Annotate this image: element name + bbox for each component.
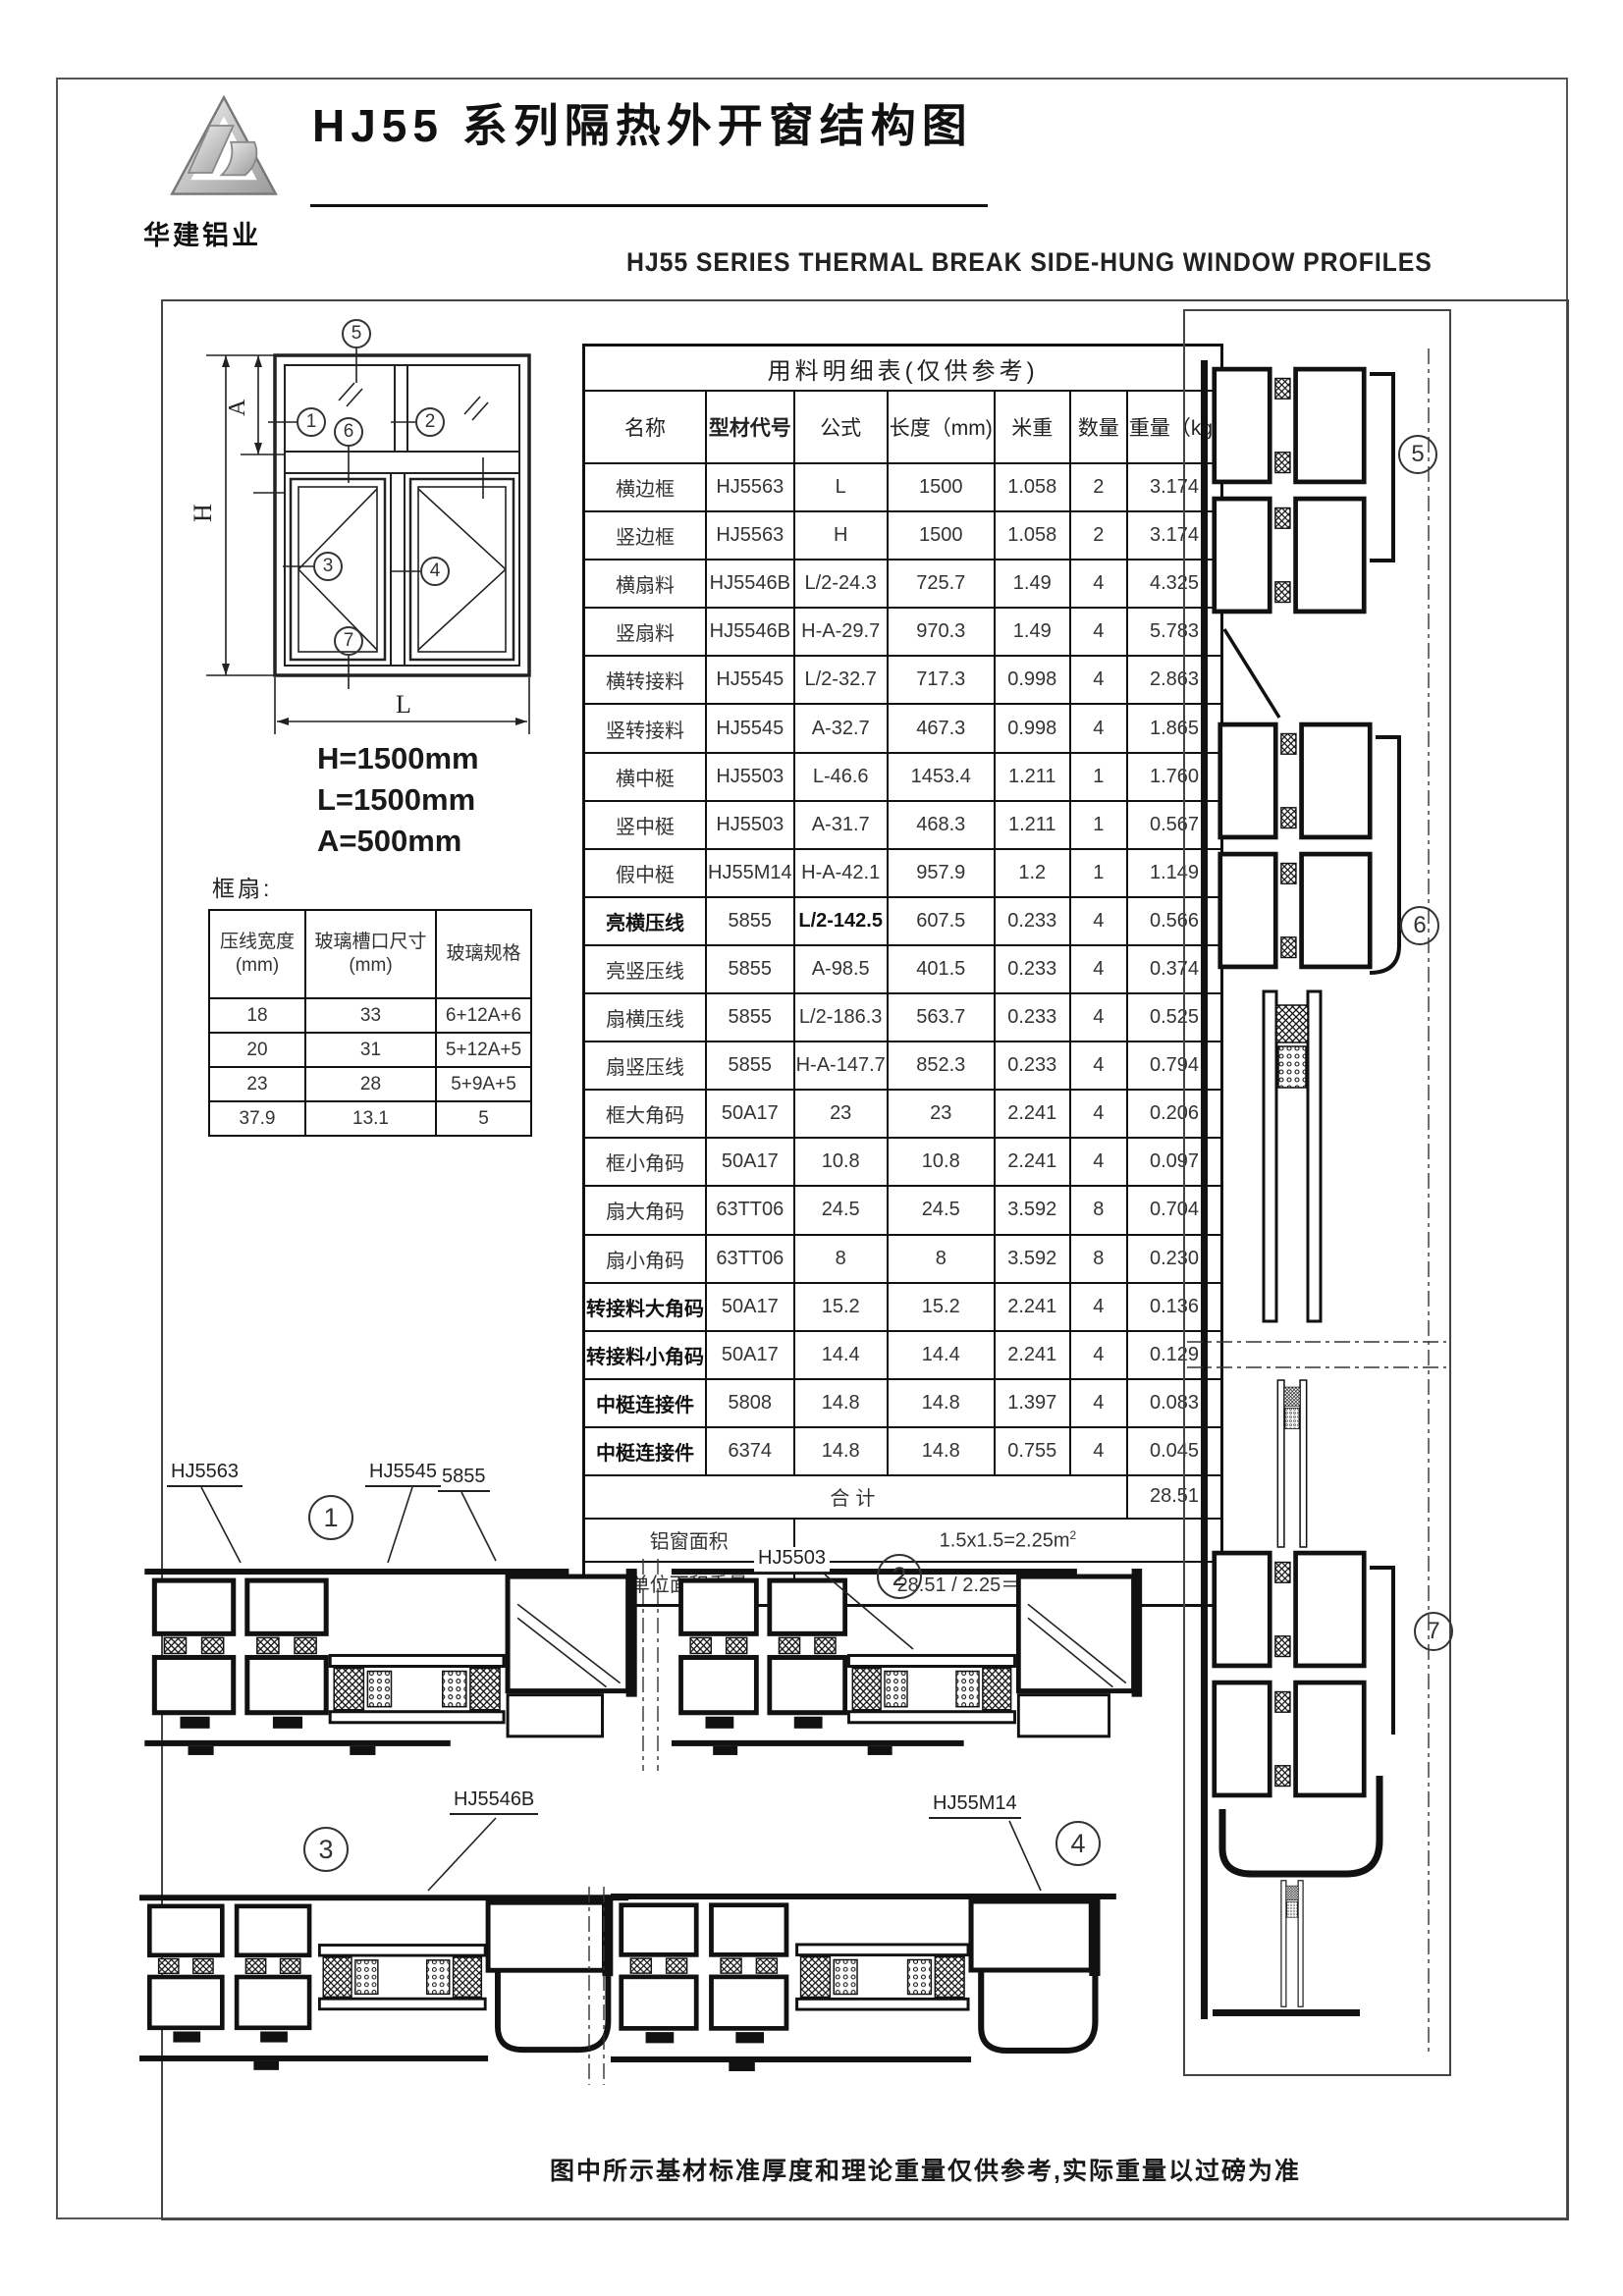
cell-code: 5855 — [706, 897, 794, 945]
marker-7-num: 7 — [344, 630, 354, 652]
material-row-20: 中梃连接件637414.814.80.75540.045 — [584, 1427, 1222, 1475]
detail-marker-4: 4 — [1055, 1821, 1101, 1866]
glass-cell: 13.1 — [305, 1101, 436, 1136]
cell-length: 15.2 — [888, 1283, 995, 1331]
glass-row-2: 23285+9A+5 — [209, 1067, 531, 1101]
material-table-body: 用料明细表(仅供参考) 名称型材代号公式长度（mm)米重数量重量（kg)横边框H… — [584, 346, 1222, 1475]
glass-row-0: 18336+12A+6 — [209, 998, 531, 1033]
cell-length: 8 — [888, 1235, 995, 1283]
frame-sash-heading: 框扇: — [212, 870, 272, 903]
cell-code: 50A17 — [706, 1138, 794, 1186]
cell-qty: 4 — [1070, 1331, 1127, 1379]
cell-code: 6374 — [706, 1427, 794, 1475]
glass-spec-table: 压线宽度 (mm)玻璃槽口尺寸 (mm)玻璃规格18336+12A+620315… — [208, 909, 532, 1137]
cell-name: 假中梃 — [584, 849, 707, 897]
cell-mweight: 0.998 — [995, 656, 1070, 704]
detail-marker-4-num: 4 — [1070, 1829, 1085, 1859]
area-value: 1.5x1.5=2.25m2 — [794, 1519, 1222, 1562]
detail-marker-2: 2 — [877, 1554, 922, 1599]
cell-mweight: 0.233 — [995, 945, 1070, 993]
cell-code: 63TT06 — [706, 1186, 794, 1234]
detail-marker-2-num: 2 — [892, 1562, 906, 1592]
cell-length: 725.7 — [888, 560, 995, 608]
glass-cell: 23 — [209, 1067, 305, 1101]
cell-length: 23 — [888, 1090, 995, 1138]
glass-header-0: 压线宽度 (mm) — [209, 910, 305, 998]
marker-6: 6 — [334, 417, 363, 447]
glass-row-3: 37.913.15 — [209, 1101, 531, 1136]
material-row-16: 扇小角码63TT06883.59280.230 — [584, 1235, 1222, 1283]
cell-mweight: 1.397 — [995, 1379, 1070, 1427]
marker-2-num: 2 — [425, 411, 436, 433]
material-row-1: 竖边框HJ5563H15001.05823.174 — [584, 511, 1222, 560]
cell-length: 467.3 — [888, 704, 995, 752]
cell-name: 横扇料 — [584, 560, 707, 608]
cell-length: 24.5 — [888, 1186, 995, 1234]
section-marker-7: 7 — [1414, 1612, 1453, 1651]
glass-cell: 31 — [305, 1033, 436, 1067]
marker-5: 5 — [342, 319, 371, 348]
cell-qty: 1 — [1070, 801, 1127, 849]
cell-length: 14.4 — [888, 1331, 995, 1379]
cell-length: 970.3 — [888, 608, 995, 656]
cell-length: 468.3 — [888, 801, 995, 849]
cell-name: 扇竖压线 — [584, 1041, 707, 1090]
material-row-2: 横扇料HJ5546BL/2-24.3725.71.4944.325 — [584, 560, 1222, 608]
dim-label-l: L — [396, 690, 411, 719]
cell-code: 50A17 — [706, 1331, 794, 1379]
material-row-14: 框小角码50A1710.810.82.24140.097 — [584, 1138, 1222, 1186]
cell-mweight: 1.211 — [995, 801, 1070, 849]
cell-formula: L/2-32.7 — [794, 656, 888, 704]
cell-length: 1453.4 — [888, 753, 995, 801]
cell-formula: 23 — [794, 1090, 888, 1138]
cell-code: HJ5545 — [706, 656, 794, 704]
cell-code: HJ5563 — [706, 511, 794, 560]
cell-mweight: 2.241 — [995, 1283, 1070, 1331]
cell-formula: H — [794, 511, 888, 560]
material-row-11: 扇横压线5855L/2-186.3563.70.23340.525 — [584, 993, 1222, 1041]
cell-mweight: 0.998 — [995, 704, 1070, 752]
glass-cell: 28 — [305, 1067, 436, 1101]
cell-qty: 4 — [1070, 945, 1127, 993]
cell-qty: 4 — [1070, 993, 1127, 1041]
section-marker-7-num: 7 — [1427, 1618, 1439, 1645]
cell-length: 14.8 — [888, 1427, 995, 1475]
marker-4-num: 4 — [430, 561, 441, 582]
cell-length: 1500 — [888, 463, 995, 511]
cell-name: 中梃连接件 — [584, 1379, 707, 1427]
material-row-13: 框大角码50A1723232.24140.206 — [584, 1090, 1222, 1138]
material-header-3: 长度（mm) — [888, 391, 995, 463]
material-row-19: 中梃连接件580814.814.81.39740.083 — [584, 1379, 1222, 1427]
cell-qty: 8 — [1070, 1235, 1127, 1283]
cell-qty: 4 — [1070, 1427, 1127, 1475]
cell-qty: 2 — [1070, 511, 1127, 560]
cell-formula: L — [794, 463, 888, 511]
cell-formula: L/2-24.3 — [794, 560, 888, 608]
cell-mweight: 1.211 — [995, 753, 1070, 801]
glass-cell: 5+12A+5 — [436, 1033, 531, 1067]
cell-qty: 4 — [1070, 1041, 1127, 1090]
cell-code: 5855 — [706, 945, 794, 993]
glass-table-body: 压线宽度 (mm)玻璃槽口尺寸 (mm)玻璃规格18336+12A+620315… — [209, 910, 531, 1136]
cell-name: 横边框 — [584, 463, 707, 511]
glass-cell: 33 — [305, 998, 436, 1033]
glass-header-row: 压线宽度 (mm)玻璃槽口尺寸 (mm)玻璃规格 — [209, 910, 531, 998]
glass-row-1: 20315+12A+5 — [209, 1033, 531, 1067]
cell-mweight: 0.233 — [995, 993, 1070, 1041]
cell-code: 50A17 — [706, 1090, 794, 1138]
material-row-7: 竖中梃HJ5503A-31.7468.31.21110.567 — [584, 801, 1222, 849]
profile-label-hj5563: HJ5563 — [167, 1461, 243, 1487]
cell-code: 5808 — [706, 1379, 794, 1427]
glass-header-2: 玻璃规格 — [436, 910, 531, 998]
cell-qty: 4 — [1070, 608, 1127, 656]
window-elevation-diagram: H A L — [182, 314, 550, 756]
cell-formula: L-46.6 — [794, 753, 888, 801]
cell-code: HJ55M14 — [706, 849, 794, 897]
cell-length: 607.5 — [888, 897, 995, 945]
cell-qty: 4 — [1070, 1379, 1127, 1427]
material-row-6: 横中梃HJ5503L-46.61453.41.21111.760 — [584, 753, 1222, 801]
cell-formula: 10.8 — [794, 1138, 888, 1186]
cell-formula: 14.8 — [794, 1379, 888, 1427]
section-marker-6: 6 — [1400, 906, 1439, 945]
profile-label-hj55m14: HJ55M14 — [929, 1792, 1021, 1819]
glass-cell: 18 — [209, 998, 305, 1033]
cell-formula: L/2-186.3 — [794, 993, 888, 1041]
dim-label-a: A — [225, 399, 250, 416]
marker-5-num: 5 — [352, 323, 362, 345]
material-row-17: 转接料大角码50A1715.215.22.24140.136 — [584, 1283, 1222, 1331]
glass-cell: 6+12A+6 — [436, 998, 531, 1033]
cell-formula: 14.4 — [794, 1331, 888, 1379]
material-table-title: 用料明细表(仅供参考) — [584, 346, 1222, 392]
cell-mweight: 1.49 — [995, 560, 1070, 608]
cell-formula: H-A-29.7 — [794, 608, 888, 656]
page-subtitle: HJ55 SERIES THERMAL BREAK SIDE-HUNG WIND… — [626, 247, 1433, 278]
cell-mweight: 0.233 — [995, 897, 1070, 945]
cell-formula: A-32.7 — [794, 704, 888, 752]
profile-label-hj5545: HJ5545 — [365, 1461, 441, 1487]
cell-name: 扇小角码 — [584, 1235, 707, 1283]
footer-note: 图中所示基材标准厚度和理论重量仅供参考,实际重量以过磅为准 — [550, 2152, 1296, 2187]
cell-qty: 4 — [1070, 560, 1127, 608]
cell-qty: 4 — [1070, 1138, 1127, 1186]
cell-qty: 2 — [1070, 463, 1127, 511]
cell-code: HJ5503 — [706, 753, 794, 801]
marker-6-num: 6 — [344, 421, 354, 443]
cell-qty: 1 — [1070, 849, 1127, 897]
cell-name: 亮竖压线 — [584, 945, 707, 993]
cell-formula: 8 — [794, 1235, 888, 1283]
company-name: 华建铝业 — [143, 214, 261, 252]
profile-label-hj5503: HJ5503 — [754, 1547, 830, 1574]
cell-formula: A-31.7 — [794, 801, 888, 849]
marker-4: 4 — [420, 557, 450, 586]
material-row-12: 扇竖压线5855H-A-147.7852.30.23340.794 — [584, 1041, 1222, 1090]
cell-qty: 8 — [1070, 1186, 1127, 1234]
glass-cell: 5 — [436, 1101, 531, 1136]
cell-name: 竖边框 — [584, 511, 707, 560]
material-header-1: 型材代号 — [706, 391, 794, 463]
cell-formula: L/2-142.5 — [794, 897, 888, 945]
detail-marker-3: 3 — [303, 1827, 349, 1872]
dim-label-h: H — [189, 504, 217, 522]
cell-mweight: 1.49 — [995, 608, 1070, 656]
horizontal-section-2-left — [137, 1890, 636, 2083]
profile-label-5855: 5855 — [438, 1466, 490, 1492]
cell-formula: 24.5 — [794, 1186, 888, 1234]
glass-cell: 37.9 — [209, 1101, 305, 1136]
marker-3: 3 — [313, 552, 343, 581]
glass-cell: 5+9A+5 — [436, 1067, 531, 1101]
cell-name: 转接料大角码 — [584, 1283, 707, 1331]
cell-formula: 14.8 — [794, 1427, 888, 1475]
cell-code: HJ5503 — [706, 801, 794, 849]
cell-length: 14.8 — [888, 1379, 995, 1427]
cell-name: 横中梃 — [584, 753, 707, 801]
cell-code: 50A17 — [706, 1283, 794, 1331]
cell-name: 竖转接料 — [584, 704, 707, 752]
dim-a-value: A=500mm — [317, 821, 479, 862]
cell-length: 563.7 — [888, 993, 995, 1041]
detail-marker-1: 1 — [308, 1495, 353, 1540]
marker-2: 2 — [415, 407, 445, 437]
glass-header-1: 玻璃槽口尺寸 (mm) — [305, 910, 436, 998]
cell-mweight: 2.241 — [995, 1331, 1070, 1379]
glass-cell: 20 — [209, 1033, 305, 1067]
material-header-0: 名称 — [584, 391, 707, 463]
material-row-4: 横转接料HJ5545L/2-32.7717.30.99842.863 — [584, 656, 1222, 704]
marker-3-num: 3 — [323, 556, 334, 577]
company-logo-icon — [165, 90, 283, 208]
vertical-section-drawing — [1183, 309, 1451, 2076]
cell-length: 717.3 — [888, 656, 995, 704]
material-header-4: 米重 — [995, 391, 1070, 463]
marker-1-num: 1 — [306, 411, 317, 433]
cell-length: 401.5 — [888, 945, 995, 993]
cell-code: 5855 — [706, 993, 794, 1041]
cell-code: HJ5546B — [706, 560, 794, 608]
material-table-title-row: 用料明细表(仅供参考) — [584, 346, 1222, 392]
cell-length: 957.9 — [888, 849, 995, 897]
cell-qty: 4 — [1070, 897, 1127, 945]
material-header-5: 数量 — [1070, 391, 1127, 463]
cell-name: 亮横压线 — [584, 897, 707, 945]
cell-qty: 4 — [1070, 704, 1127, 752]
cell-code: 5855 — [706, 1041, 794, 1090]
cell-name: 框小角码 — [584, 1138, 707, 1186]
cell-mweight: 2.241 — [995, 1090, 1070, 1138]
cell-mweight: 1.058 — [995, 463, 1070, 511]
page-title: HJ55 系列隔热外开窗结构图 — [312, 90, 973, 155]
total-row: 合计 28.51 — [584, 1475, 1222, 1519]
horizontal-section-2-right — [609, 1890, 1124, 2083]
dim-l-value: L=1500mm — [317, 779, 479, 821]
cell-name: 扇横压线 — [584, 993, 707, 1041]
cell-formula: H-A-147.7 — [794, 1041, 888, 1090]
cell-name: 扇大角码 — [584, 1186, 707, 1234]
material-row-15: 扇大角码63TT0624.524.53.59280.704 — [584, 1186, 1222, 1234]
cell-name: 中梃连接件 — [584, 1427, 707, 1475]
profile-label-hj5546b: HJ5546B — [450, 1789, 538, 1815]
title-underline — [310, 204, 988, 207]
cell-formula: A-98.5 — [794, 945, 888, 993]
material-row-3: 竖扇料HJ5546BH-A-29.7970.31.4945.783 — [584, 608, 1222, 656]
cell-name: 竖中梃 — [584, 801, 707, 849]
cell-mweight: 1.058 — [995, 511, 1070, 560]
cell-code: HJ5545 — [706, 704, 794, 752]
cell-mweight: 0.233 — [995, 1041, 1070, 1090]
cell-mweight: 2.241 — [995, 1138, 1070, 1186]
cell-qty: 4 — [1070, 656, 1127, 704]
detail-marker-1-num: 1 — [323, 1503, 338, 1533]
material-row-18: 转接料小角码50A1714.414.42.24140.129 — [584, 1331, 1222, 1379]
total-label: 合计 — [584, 1475, 1127, 1519]
cell-mweight: 1.2 — [995, 849, 1070, 897]
cell-mweight: 3.592 — [995, 1235, 1070, 1283]
cell-name: 转接料小角码 — [584, 1331, 707, 1379]
section-marker-6-num: 6 — [1413, 912, 1426, 939]
cell-mweight: 3.592 — [995, 1186, 1070, 1234]
cell-qty: 4 — [1070, 1090, 1127, 1138]
material-row-10: 亮竖压线5855A-98.5401.50.23340.374 — [584, 945, 1222, 993]
material-row-8: 假中梃HJ55M14H-A-42.1957.91.211.149 — [584, 849, 1222, 897]
cell-formula: H-A-42.1 — [794, 849, 888, 897]
section-marker-5: 5 — [1398, 435, 1437, 474]
section-marker-5-num: 5 — [1411, 441, 1424, 468]
document-page: 华建铝业 HJ55 系列隔热外开窗结构图 HJ55 SERIES THERMAL… — [0, 0, 1623, 2296]
material-table: 用料明细表(仅供参考) 名称型材代号公式长度（mm)米重数量重量（kg)横边框H… — [582, 344, 1223, 1607]
marker-1: 1 — [297, 407, 326, 437]
cell-length: 852.3 — [888, 1041, 995, 1090]
cell-mweight: 0.755 — [995, 1427, 1070, 1475]
material-row-5: 竖转接料HJ5545A-32.7467.30.99841.865 — [584, 704, 1222, 752]
material-row-9: 亮横压线5855L/2-142.5607.50.23340.566 — [584, 897, 1222, 945]
detail-marker-3-num: 3 — [318, 1835, 333, 1865]
cell-name: 横转接料 — [584, 656, 707, 704]
cell-name: 竖扇料 — [584, 608, 707, 656]
cell-formula: 15.2 — [794, 1283, 888, 1331]
horizontal-section-1-left — [142, 1563, 641, 1767]
material-header-row: 名称型材代号公式长度（mm)米重数量重量（kg) — [584, 391, 1222, 463]
cell-code: HJ5563 — [706, 463, 794, 511]
dimension-values: H=1500mm L=1500mm A=500mm — [317, 738, 479, 862]
cell-qty: 1 — [1070, 753, 1127, 801]
cell-length: 10.8 — [888, 1138, 995, 1186]
dim-h-value: H=1500mm — [317, 738, 479, 779]
material-row-0: 横边框HJ5563L15001.05823.174 — [584, 463, 1222, 511]
cell-name: 框大角码 — [584, 1090, 707, 1138]
cell-code: 63TT06 — [706, 1235, 794, 1283]
marker-7: 7 — [334, 626, 363, 656]
material-header-2: 公式 — [794, 391, 888, 463]
cell-qty: 4 — [1070, 1283, 1127, 1331]
cell-code: HJ5546B — [706, 608, 794, 656]
cell-length: 1500 — [888, 511, 995, 560]
